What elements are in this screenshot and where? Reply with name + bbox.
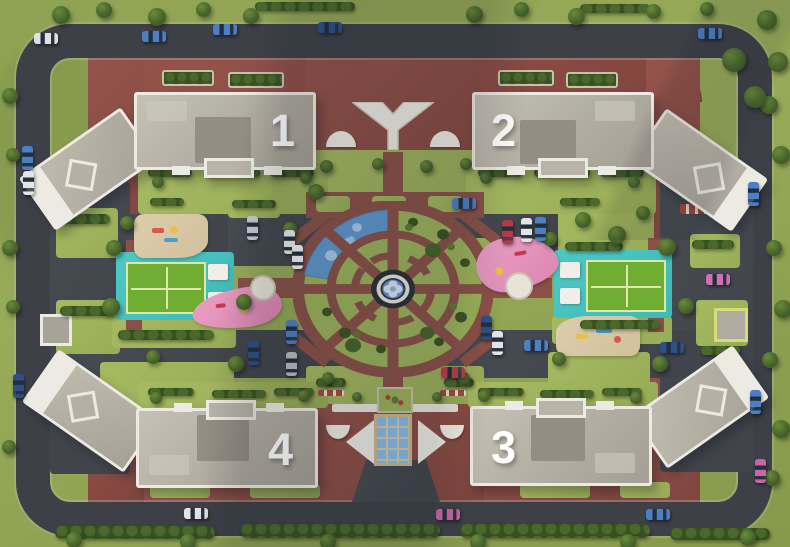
rest-pad-west xyxy=(250,275,276,301)
court-field-west xyxy=(126,262,206,314)
blue-play-feature xyxy=(352,223,362,232)
building-4-slab: 4 xyxy=(136,408,318,488)
glass-skylight xyxy=(374,414,412,466)
building-3[interactable]: 3 xyxy=(470,375,760,505)
building-4[interactable]: 4 xyxy=(29,379,319,509)
building-1-number: 1 xyxy=(270,108,295,153)
building-2-number: 2 xyxy=(491,108,516,153)
entrance-pavilion-south xyxy=(326,404,466,470)
pergola-south-west xyxy=(318,390,344,396)
play-equipment xyxy=(596,328,612,333)
parapet-tab xyxy=(598,166,616,175)
play-equipment xyxy=(152,228,164,233)
roof-feature xyxy=(65,159,97,191)
sport-court-east xyxy=(554,250,672,318)
roof-highlight xyxy=(149,455,189,475)
roof-highlight xyxy=(595,453,635,473)
court-line xyxy=(591,286,661,288)
court-platform xyxy=(560,288,580,304)
tree xyxy=(757,10,777,30)
building-2-slab: 2 xyxy=(472,92,654,170)
roof-feature xyxy=(67,390,99,422)
play-equipment xyxy=(240,305,249,314)
tree xyxy=(466,6,483,23)
tree xyxy=(740,530,756,546)
tree xyxy=(568,8,585,25)
roof-feature xyxy=(693,162,725,194)
play-equipment xyxy=(495,267,504,276)
play-equipment xyxy=(170,226,178,234)
canopy-wing-west xyxy=(346,420,374,464)
pergola-south-east xyxy=(440,390,466,396)
flower-planter xyxy=(377,387,413,413)
playground-sand-east xyxy=(556,316,640,356)
entrance-core xyxy=(536,398,586,418)
garden-tree xyxy=(420,327,434,339)
court-field-east xyxy=(586,260,666,312)
parapet-tab xyxy=(174,403,192,412)
utility-kiosk-west xyxy=(40,314,72,346)
roof-highlight xyxy=(595,101,635,121)
parapet-tab xyxy=(505,401,523,410)
entrance-core xyxy=(538,158,588,178)
building-1-slab: 1 xyxy=(134,92,316,170)
court-line xyxy=(131,288,201,290)
fan-canopy xyxy=(352,102,434,150)
building-4-number: 4 xyxy=(268,427,293,472)
tree xyxy=(2,440,16,454)
play-equipment xyxy=(215,303,225,308)
tree xyxy=(646,4,661,19)
court-platform xyxy=(560,262,580,278)
roof-well xyxy=(197,415,249,461)
parapet-tab xyxy=(172,166,190,175)
parapet-tab xyxy=(596,401,614,410)
garden-tree xyxy=(345,338,361,352)
play-equipment xyxy=(576,334,588,339)
entrance-core xyxy=(204,158,254,178)
tree xyxy=(772,146,790,164)
hedge-row xyxy=(580,4,650,13)
dome-canopy xyxy=(440,425,464,439)
roof-highlight xyxy=(147,101,187,121)
building-1[interactable]: 1 xyxy=(26,92,316,222)
parapet-tab xyxy=(507,166,525,175)
central-fountain xyxy=(371,270,415,309)
dome-canopy xyxy=(326,425,350,439)
circular-garden xyxy=(293,201,493,377)
tree xyxy=(700,2,714,16)
roof-feature xyxy=(695,384,727,416)
rest-pad-east xyxy=(505,272,533,300)
building-2[interactable]: 2 xyxy=(472,92,762,222)
parapet-tab xyxy=(264,166,282,175)
play-equipment xyxy=(164,238,178,242)
roof-well xyxy=(531,415,585,461)
tree xyxy=(52,6,70,24)
building-3-slab: 3 xyxy=(470,406,652,486)
play-equipment xyxy=(514,250,527,256)
court-platform xyxy=(208,264,228,280)
building-3-number: 3 xyxy=(491,425,516,470)
garden-tree xyxy=(425,243,441,257)
siteplan-canvas: 1 2 4 xyxy=(0,0,790,547)
play-equipment xyxy=(614,336,621,343)
entrance-pavilion-north xyxy=(352,102,434,150)
roof-well xyxy=(195,117,251,163)
tree xyxy=(514,2,529,17)
blue-play-feature xyxy=(325,250,337,261)
utility-pad-east xyxy=(714,308,748,342)
entrance-core xyxy=(206,400,256,420)
parapet-tab xyxy=(266,403,284,412)
